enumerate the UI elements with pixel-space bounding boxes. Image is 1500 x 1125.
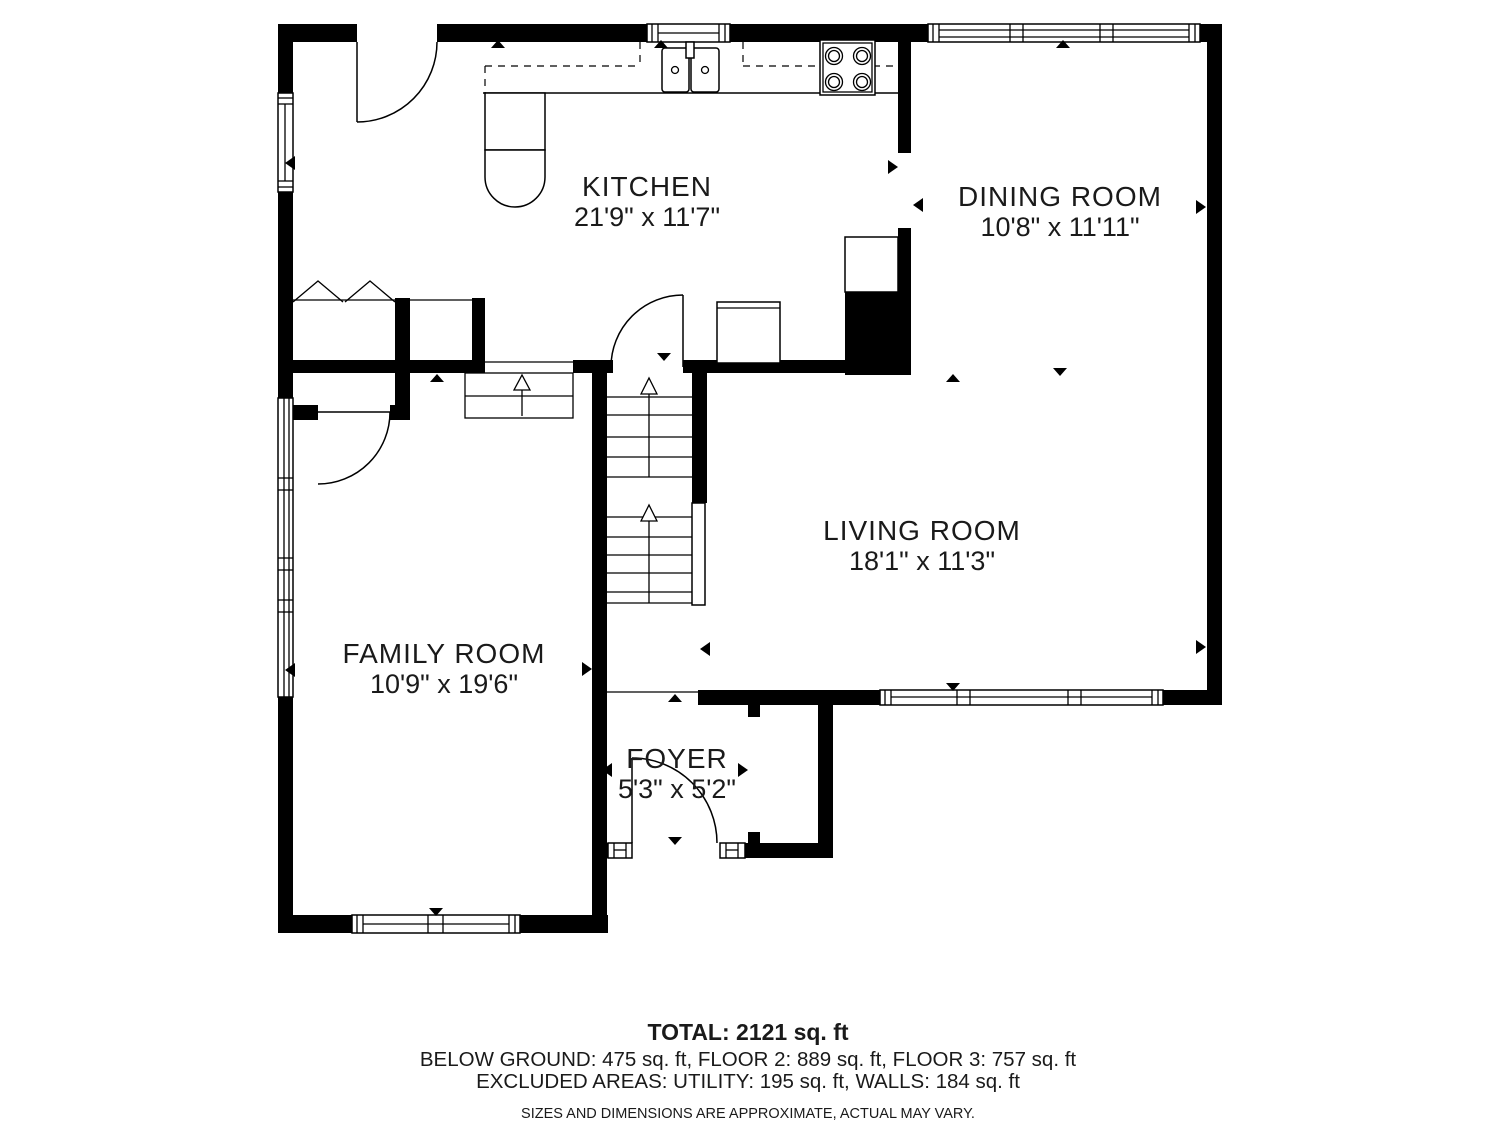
kitchen-window bbox=[647, 24, 730, 42]
stair-hall-door bbox=[611, 295, 683, 367]
direction-marker bbox=[582, 662, 592, 676]
room-label-family: FAMILY ROOM bbox=[343, 638, 546, 669]
disclaimer-text: SIZES AND DIMENSIONS ARE APPROXIMATE, AC… bbox=[521, 1106, 975, 1122]
room-dims-dining: 10'8" x 11'11" bbox=[980, 212, 1139, 242]
direction-marker bbox=[946, 374, 960, 382]
kitchen-peninsula bbox=[485, 93, 545, 207]
kitchen-entry-door bbox=[357, 42, 437, 122]
closet-bifold-doors bbox=[293, 281, 395, 302]
stove bbox=[820, 40, 875, 95]
room-label-living: LIVING ROOM bbox=[823, 515, 1021, 546]
direction-markers bbox=[285, 40, 1206, 916]
room-dims-kitchen: 21'9" x 11'7" bbox=[574, 202, 720, 232]
family-room-door bbox=[318, 412, 390, 484]
stairs-up-arrow-1 bbox=[641, 378, 657, 477]
corner-cabinet bbox=[845, 237, 898, 292]
windows bbox=[278, 24, 1200, 933]
living-windows bbox=[880, 690, 1163, 705]
split-level-steps bbox=[465, 373, 573, 418]
walls bbox=[278, 24, 1222, 933]
room-label-dining: DINING ROOM bbox=[958, 181, 1162, 212]
room-label-kitchen: KITCHEN bbox=[582, 171, 712, 202]
stairs-up-arrow-2 bbox=[641, 505, 657, 603]
direction-marker bbox=[668, 694, 682, 702]
refrigerator bbox=[717, 302, 780, 363]
direction-marker bbox=[668, 837, 682, 845]
direction-marker bbox=[913, 198, 923, 212]
family-side-windows bbox=[278, 398, 293, 697]
excluded-areas-text: EXCLUDED AREAS: UTILITY: 195 sq. ft, WAL… bbox=[476, 1070, 1020, 1093]
staircase bbox=[465, 373, 705, 605]
direction-marker bbox=[700, 642, 710, 656]
kitchen-side-window bbox=[278, 93, 293, 192]
entry-sidelight-right bbox=[720, 843, 745, 858]
floor-areas-text: BELOW GROUND: 475 sq. ft, FLOOR 2: 889 s… bbox=[420, 1048, 1077, 1071]
total-area-text: TOTAL: 2121 sq. ft bbox=[647, 1019, 848, 1045]
direction-marker bbox=[1053, 368, 1067, 376]
direction-marker bbox=[657, 353, 671, 361]
direction-marker bbox=[888, 160, 898, 174]
direction-marker bbox=[738, 763, 748, 777]
family-bottom-window bbox=[352, 915, 520, 933]
stair-railing bbox=[692, 503, 705, 605]
dining-windows bbox=[928, 24, 1200, 42]
direction-marker bbox=[1196, 200, 1206, 214]
floor-plan-page: KITCHEN 21'9" x 11'7" DINING ROOM 10'8" … bbox=[0, 0, 1500, 1125]
room-dims-foyer: 5'3" x 5'2" bbox=[618, 774, 736, 804]
area-summary: TOTAL: 2121 sq. ft BELOW GROUND: 475 sq.… bbox=[420, 1019, 1077, 1122]
direction-marker bbox=[1196, 640, 1206, 654]
room-label-foyer: FOYER bbox=[626, 743, 727, 774]
kitchen-sink bbox=[662, 42, 719, 92]
entry-sidelight-left bbox=[608, 843, 632, 858]
direction-marker bbox=[430, 374, 444, 382]
room-dims-family: 10'9" x 19'6" bbox=[370, 669, 518, 699]
room-dims-living: 18'1" x 11'3" bbox=[849, 546, 995, 576]
floor-plan-drawing: KITCHEN 21'9" x 11'7" DINING ROOM 10'8" … bbox=[0, 0, 1500, 1125]
